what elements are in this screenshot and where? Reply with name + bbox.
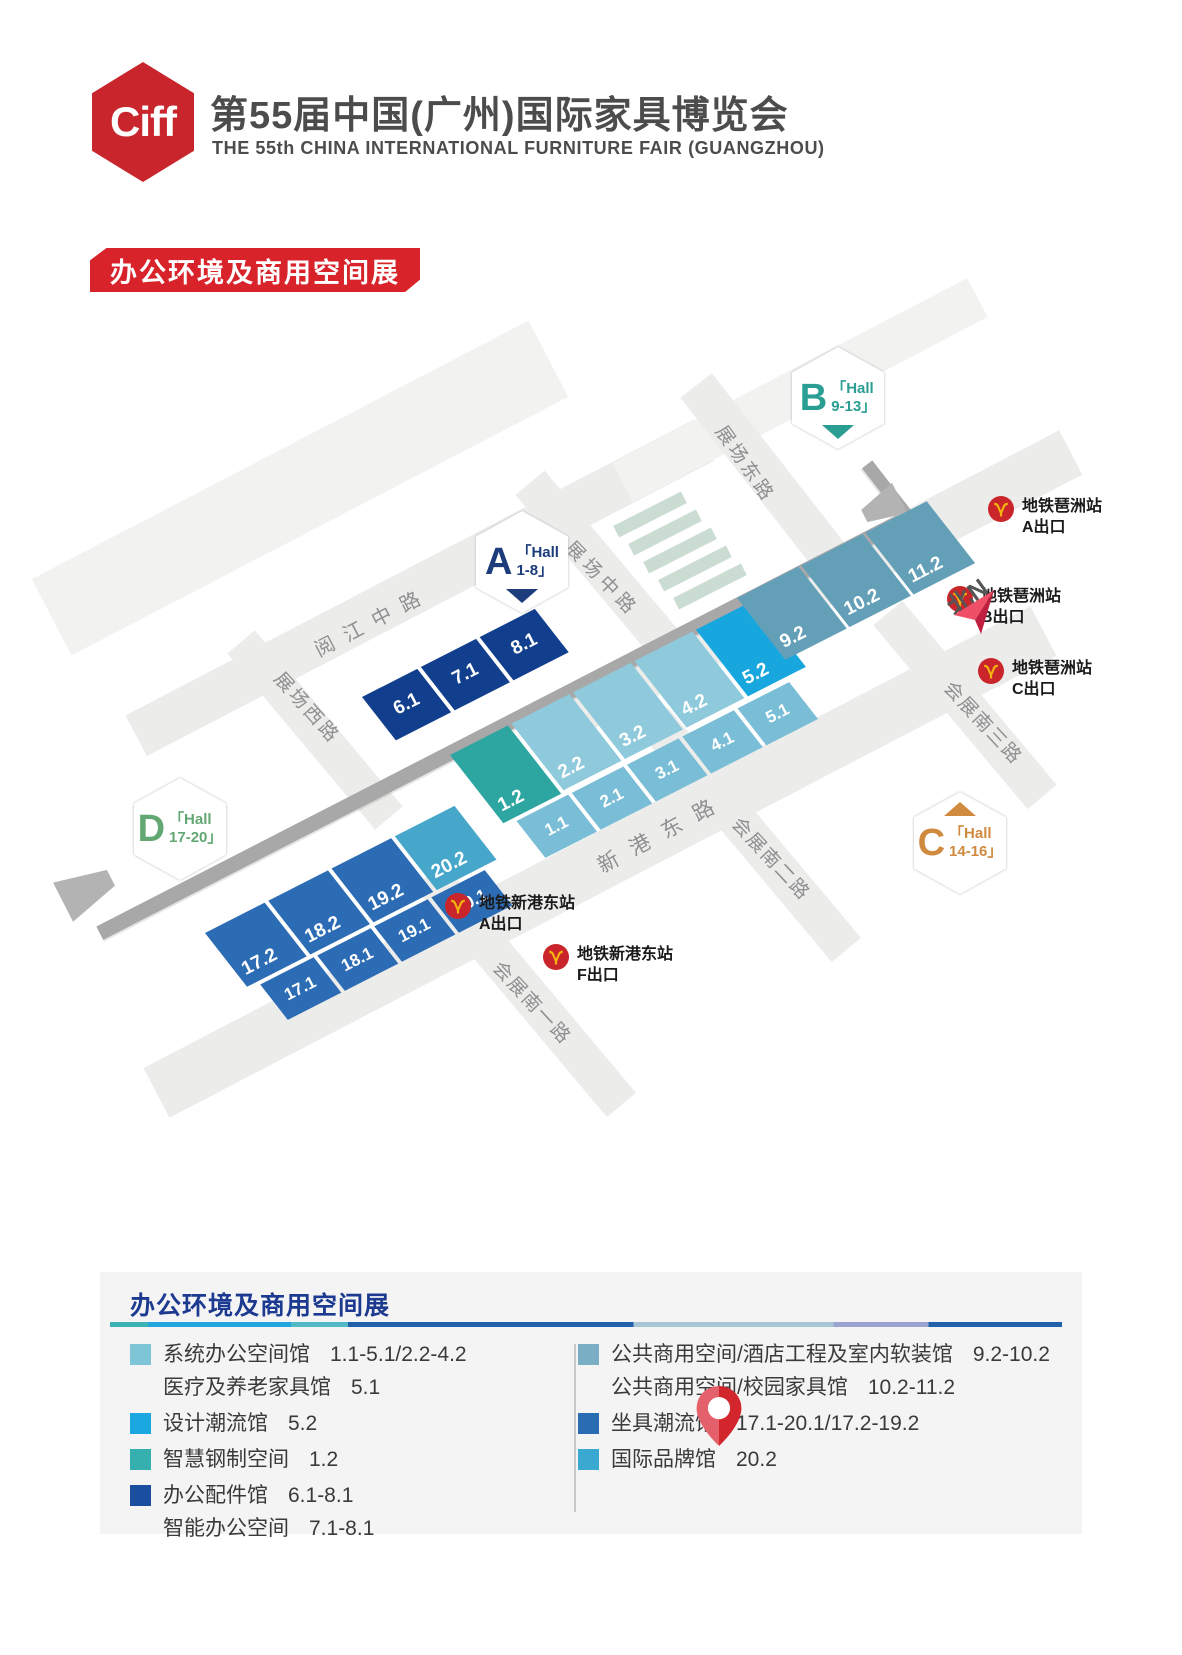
hall-block-group-9-11: 9.2 10.2 11.2 [737,501,975,660]
hall-marker-pointer [944,802,976,816]
legend-range: 20.2 [736,1448,777,1471]
hall-marker-letter: B [800,379,827,417]
metro-exit: A出口 [479,916,523,933]
legend-label: 医疗及养老家具馆 [163,1376,331,1399]
ciff-logo: Ciff [92,62,194,182]
metro-marker-xingangdong-a: 地铁新港东站 A出口 [445,893,575,935]
ciff-logo-text: Ciff [110,98,176,146]
section-badge: 办公环境及商用空间展 [90,248,420,292]
legend-label: 系统办公空间馆 [163,1343,310,1366]
hall-marker-hall: 「Hall [169,811,212,828]
hall-marker-a: A 「Hall 1-8」 [476,511,568,613]
legend-label: 公共商用空间/酒店工程及室内软装馆 [611,1343,953,1366]
location-pin-icon [693,1384,745,1448]
metro-icon [978,658,1004,684]
legend-item-public-commercial: 公共商用空间/酒店工程及室内软装馆9.2-10.2 公共商用空间/校园家具馆10… [578,1338,1050,1404]
metro-exit: F出口 [577,967,619,984]
hall-marker-hall: 「Hall [949,825,992,842]
legend-range: 17.1-20.1/17.2-19.2 [736,1412,919,1435]
north-arrow-icon [950,588,998,636]
hall-marker-range: 14-16」 [949,843,1002,860]
metro-station-name: 地铁琶洲站 [1022,498,1102,515]
legend-item-international-brand: 国际品牌馆20.2 [578,1443,1050,1476]
legend-range: 5.1 [351,1376,380,1399]
legend-label: 设计潮流馆 [163,1412,268,1435]
poster-page: Ciff 第55届中国(广州)国际家具博览会 THE 55th CHINA IN… [0,0,1182,1655]
legend-swatch [130,1344,151,1365]
hall-marker-range: 17-20」 [169,829,222,846]
metro-icon [543,944,569,970]
legend-item-system-office: 系统办公空间馆1.1-5.1/2.2-4.2 医疗及养老家具馆5.1 [130,1338,467,1404]
legend-range: 10.2-11.2 [868,1376,955,1399]
legend-item-office-accessories: 办公配件馆6.1-8.1 智能办公空间7.1-8.1 [130,1479,467,1545]
legend-label: 国际品牌馆 [611,1448,716,1471]
legend-label: 智慧钢制空间 [163,1448,289,1471]
hall-marker-c: C 「Hall 14-16」 [914,792,1006,894]
metro-marker-pazhou-c: 地铁琶洲站 C出口 [978,658,1092,700]
metro-exit: C出口 [1012,681,1056,698]
legend-item-seating-trend: 坐具潮流馆17.1-20.1/17.2-19.2 [578,1407,1050,1440]
fair-title-english: THE 55th CHINA INTERNATIONAL FURNITURE F… [212,138,825,159]
legend-column-left: 系统办公空间馆1.1-5.1/2.2-4.2 医疗及养老家具馆5.1 设计潮流馆… [130,1338,467,1548]
metro-station-name: 地铁新港东站 [479,895,575,912]
legend-item-design-trend: 设计潮流馆5.2 [130,1407,467,1440]
legend-range: 6.1-8.1 [288,1484,353,1507]
legend-range: 1.1-5.1/2.2-4.2 [330,1343,467,1366]
legend-range: 1.2 [309,1448,338,1471]
fair-title-chinese: 第55届中国(广州)国际家具博览会 [210,84,789,139]
legend-divider-bar [110,1322,1062,1327]
hall-marker-range: 1-8」 [516,562,553,579]
legend-range: 9.2-10.2 [973,1343,1050,1366]
metro-icon [445,893,471,919]
legend-column-right: 公共商用空间/酒店工程及室内软装馆9.2-10.2 公共商用空间/校园家具馆10… [578,1338,1050,1479]
legend-range: 5.2 [288,1412,317,1435]
hall-marker-pointer [822,425,854,439]
hall-marker-d: D 「Hall 17-20」 [134,778,226,880]
hall-marker-letter: D [138,810,165,848]
legend-label: 办公配件馆 [163,1484,268,1507]
legend-swatch [130,1413,151,1434]
hall-marker-hall: 「Hall [516,544,559,561]
metro-station-name: 地铁新港东站 [577,946,673,963]
hall-marker-pointer [506,589,538,603]
metro-station-name: 地铁琶洲站 [1012,660,1092,677]
metro-marker-xingangdong-f: 地铁新港东站 F出口 [543,944,673,986]
hall-marker-letter: A [485,543,512,581]
legend-range: 7.1-8.1 [309,1517,374,1540]
legend-panel: 办公环境及商用空间展 系统办公空间馆1.1-5.1/2.2-4.2 医疗及养老家… [100,1272,1082,1534]
legend-swatch [578,1344,599,1365]
hall-marker-range: 9-13」 [831,398,876,415]
legend-swatch [130,1485,151,1506]
hall-marker-letter: C [918,824,945,862]
legend-item-smart-steel: 智慧钢制空间1.2 [130,1443,467,1476]
legend-swatch [130,1449,151,1470]
venue-map: 阅江中路 展场东路 展场中路 展场西路 新港东路 会展南三路 会展南二路 会展南… [0,300,1182,1090]
legend-title: 办公环境及商用空间展 [130,1286,390,1322]
legend-swatch [578,1449,599,1470]
metro-marker-pazhou-a: 地铁琶洲站 A出口 [988,496,1102,538]
metro-exit: A出口 [1022,519,1066,536]
elevated-road-flare-left [53,858,121,922]
legend-column-divider [574,1344,576,1512]
legend-swatch [578,1413,599,1434]
metro-icon [988,496,1014,522]
hall-marker-hall: 「Hall [831,380,874,397]
legend-label: 智能办公空间 [163,1517,289,1540]
hall-marker-b: B 「Hall 9-13」 [792,347,884,449]
